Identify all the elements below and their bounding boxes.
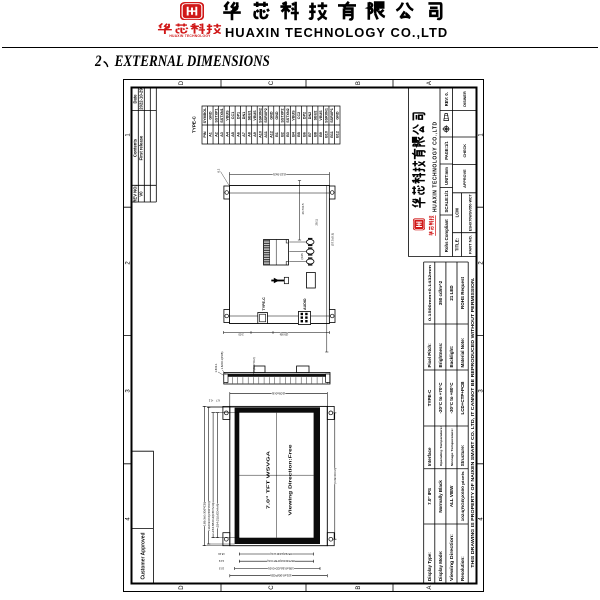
svg-text:121±0.30(PCB): 121±0.30(PCB) xyxy=(270,574,291,578)
svg-text:SSRXP2: SSRXP2 xyxy=(264,108,268,123)
svg-text:Pixel Pitch:: Pixel Pitch: xyxy=(427,343,432,368)
svg-text:(105±0.3): (105±0.3) xyxy=(272,392,285,396)
svg-text:A5: A5 xyxy=(231,132,235,137)
svg-text:B8: B8 xyxy=(314,132,318,137)
svg-text:DISINER: DISINER xyxy=(463,91,467,107)
svg-text:B1: B1 xyxy=(275,132,279,137)
svg-text:HUAXIN TECHNOLOGY CO.,LTD: HUAXIN TECHNOLOGY CO.,LTD xyxy=(433,121,439,212)
svg-text:A1: A1 xyxy=(209,132,213,137)
svg-text:APPROVE: APPROVE xyxy=(463,169,467,188)
svg-text:TYPE-C: TYPE-C xyxy=(427,389,432,406)
svg-text:CHECK: CHECK xyxy=(463,144,467,158)
svg-text:GND: GND xyxy=(336,111,340,120)
svg-text:CC2: CC2 xyxy=(297,112,301,119)
svg-text:A6: A6 xyxy=(236,132,240,137)
svg-text:SSTXP1: SSTXP1 xyxy=(214,108,218,122)
svg-text:ROHS Request: ROHS Request xyxy=(460,277,465,310)
svg-text:B9: B9 xyxy=(319,132,323,137)
svg-text:PIN: PIN xyxy=(203,131,207,137)
svg-text:DN1: DN1 xyxy=(242,112,246,119)
svg-text:ALL VIEW: ALL VIEW xyxy=(449,485,454,507)
svg-text:1024(RGB)X600 pixels: 1024(RGB)X600 pixels xyxy=(461,471,465,521)
svg-text:TITLE:: TITLE: xyxy=(455,238,460,251)
svg-text:B7: B7 xyxy=(308,132,312,137)
svg-text:165.3±0.30(PCB): 165.3±0.30(PCB) xyxy=(202,502,206,526)
svg-text:2: 2 xyxy=(478,261,484,265)
svg-text:B10: B10 xyxy=(325,131,329,138)
svg-text:6.2: 6.2 xyxy=(217,168,221,172)
svg-text:GND: GND xyxy=(209,111,213,120)
svg-text:First release: First release xyxy=(138,135,143,160)
svg-text:A2: A2 xyxy=(214,132,218,137)
svg-text:(149.3±0.2): (149.3±0.2) xyxy=(333,468,337,484)
svg-text:C: C xyxy=(269,80,275,85)
svg-text:SBU2: SBU2 xyxy=(314,111,318,121)
svg-text:85.92(LCD A.A): 85.92(LCD A.A) xyxy=(270,552,292,556)
svg-text:SBU1: SBU1 xyxy=(247,111,251,121)
svg-text:Interface: Interface xyxy=(427,447,432,466)
svg-text:LCD+CTP+PCB: LCD+CTP+PCB xyxy=(460,381,465,415)
svg-text:DN2: DN2 xyxy=(308,112,312,119)
svg-text:B11: B11 xyxy=(330,131,334,138)
svg-text:46.7±0.5: 46.7±0.5 xyxy=(301,203,305,215)
svg-text:SCALE:1/1: SCALE:1/1 xyxy=(444,190,449,213)
svg-text:Rohs Compliant: Rohs Compliant xyxy=(444,219,449,253)
svg-text:(4.05: (4.05 xyxy=(300,253,304,260)
svg-text:1.62±0.1(PCB): 1.62±0.1(PCB) xyxy=(220,352,224,370)
svg-text:REV: 0.: REV: 0. xyxy=(444,92,449,106)
svg-text:(57.5±0.3): (57.5±0.3) xyxy=(330,233,334,246)
svg-text:-30°C to +80°C: -30°C to +80°C xyxy=(449,382,454,414)
svg-text:B2: B2 xyxy=(281,132,285,137)
svg-text:VBUS: VBUS xyxy=(253,110,257,121)
svg-text:A9: A9 xyxy=(253,132,257,137)
svg-text:Operating Temperature:: Operating Temperature: xyxy=(439,426,443,466)
svg-text:(112.0±2): (112.0±2) xyxy=(273,172,286,176)
svg-text:A3: A3 xyxy=(220,132,224,137)
svg-text:SSRXP1: SSRXP1 xyxy=(330,108,334,123)
svg-text:1: 1 xyxy=(126,133,132,137)
svg-text:350 cd/m^2: 350 cd/m^2 xyxy=(438,280,443,305)
svg-text:Viewing Direction:: Viewing Direction: xyxy=(449,533,454,581)
svg-text:105±0.3(LCD O.D): 105±0.3(LCD O.D) xyxy=(268,566,294,570)
svg-text:Contents: Contents xyxy=(132,138,137,157)
svg-text:Display Mode:: Display Mode: xyxy=(438,550,443,581)
svg-text:LCM: LCM xyxy=(455,208,460,218)
svg-text:A10: A10 xyxy=(258,131,262,138)
svg-text:D: D xyxy=(179,585,185,590)
svg-text:D: D xyxy=(179,80,185,85)
svg-text:Resolution:: Resolution: xyxy=(460,556,465,581)
svg-text:B4: B4 xyxy=(292,131,296,137)
svg-text:TYPE-C: TYPE-C xyxy=(262,297,266,311)
svg-text:0.1500mm×0.1432mm: 0.1500mm×0.1432mm xyxy=(427,264,432,321)
svg-text:Backlight:: Backlight: xyxy=(449,345,454,367)
svg-text:2022-10-29: 2022-10-29 xyxy=(138,88,143,110)
svg-text:2: 2 xyxy=(126,261,132,265)
svg-text:TYPE-C: TYPE-C xyxy=(192,115,197,133)
svg-text:3: 3 xyxy=(126,389,132,393)
svg-text:CC1: CC1 xyxy=(231,112,235,119)
svg-text:Date: Date xyxy=(132,94,137,104)
svg-text:B: B xyxy=(356,81,362,85)
svg-text:V0: V0 xyxy=(138,191,143,197)
svg-text:1.6±0.1: 1.6±0.1 xyxy=(214,363,218,372)
svg-text:GND: GND xyxy=(269,111,273,120)
svg-text:‹154.88±0.2(CTP V.A): ‹154.88±0.2(CTP V.A) xyxy=(211,503,215,533)
svg-text:UNIT:mm: UNIT:mm xyxy=(444,167,449,185)
svg-text:A12: A12 xyxy=(269,131,273,138)
svg-text:A8: A8 xyxy=(247,132,251,137)
svg-text:DP2: DP2 xyxy=(303,112,307,119)
svg-text:A: A xyxy=(427,81,433,85)
svg-text:7.0” TFT WSVGA: 7.0” TFT WSVGA xyxy=(266,450,271,509)
svg-text:DP1: DP1 xyxy=(236,112,240,119)
svg-text:Customer Approved: Customer Approved xyxy=(141,533,147,580)
svg-text:(6.07±0.2): (6.07±0.2) xyxy=(252,357,256,369)
svg-text:SSRXN1: SSRXN1 xyxy=(325,108,329,123)
svg-text:-0.2: -0.2 xyxy=(208,399,213,403)
svg-text:‹154.21(LCD A.A): ‹154.21(LCD A.A) xyxy=(216,504,220,528)
svg-text:B5: B5 xyxy=(297,132,301,137)
svg-text:(29.99): (29.99) xyxy=(280,333,289,337)
svg-text:A: A xyxy=(427,586,433,590)
svg-text:C: C xyxy=(269,585,275,590)
svg-text:SYMBOL: SYMBOL xyxy=(203,107,207,124)
svg-text:1: 1 xyxy=(478,133,484,137)
svg-text:Normally Black: Normally Black xyxy=(438,480,443,513)
svg-text:10.5: 10.5 xyxy=(218,567,224,571)
svg-text:Storage Temperature:: Storage Temperature: xyxy=(450,428,454,466)
svg-text:‹164.9±0.2(LCD O.D): ‹164.9±0.2(LCD O.D) xyxy=(207,501,211,530)
svg-text:2.05: 2.05 xyxy=(238,333,244,337)
svg-text:SSTXP2: SSTXP2 xyxy=(281,108,285,122)
svg-text:29.11: 29.11 xyxy=(315,218,319,225)
svg-text:PART NO.: PART NO. xyxy=(467,235,472,254)
svg-text:21 LED: 21 LED xyxy=(449,285,454,301)
svg-text:Viewing Direction:Free: Viewing Direction:Free xyxy=(288,444,293,516)
svg-text:6.7: 6.7 xyxy=(216,399,220,403)
svg-text:VBUS: VBUS xyxy=(319,110,323,121)
svg-text:7.0'' IPS: 7.0'' IPS xyxy=(427,488,432,505)
svg-text:A4: A4 xyxy=(225,131,229,137)
svg-text:SSRXN2: SSRXN2 xyxy=(258,108,262,123)
svg-text:REV NO.: REV NO. xyxy=(132,185,137,202)
svg-text:Brightness:: Brightness: xyxy=(438,342,443,368)
svg-text:-20°C to +70°C: -20°C to +70°C xyxy=(438,382,443,414)
svg-text:4: 4 xyxy=(126,517,132,521)
svg-text:VBUS: VBUS xyxy=(225,110,229,121)
svg-text:Structure:: Structure: xyxy=(460,444,465,466)
svg-text:B12: B12 xyxy=(336,131,340,138)
svg-text:A11: A11 xyxy=(264,131,268,138)
svg-text:Material Note:: Material Note: xyxy=(460,337,465,367)
svg-text:4: 4 xyxy=(478,517,484,521)
svg-text:86.73±0.2(CTP V.A): 86.73±0.2(CTP V.A) xyxy=(267,559,295,563)
svg-text:PAGE:1/1: PAGE:1/1 xyxy=(444,141,449,160)
svg-text:SSTXN1: SSTXN1 xyxy=(220,108,224,122)
svg-text:3: 3 xyxy=(478,389,484,393)
svg-text:ESHX70WSV050-WCT: ESHX70WSV050-WCT xyxy=(467,194,472,232)
svg-text:THIS DRAWING IS PROPERTY OF NA: THIS DRAWING IS PROPERTY OF NAIXEN SMART… xyxy=(470,278,475,568)
svg-text:B6: B6 xyxy=(303,132,307,137)
svg-text:B: B xyxy=(356,586,362,590)
svg-text:B3: B3 xyxy=(286,132,290,137)
svg-text:GND: GND xyxy=(275,111,279,120)
svg-text:15.19: 15.19 xyxy=(218,552,225,556)
svg-text:A7: A7 xyxy=(242,132,246,137)
svg-text:VBUS: VBUS xyxy=(292,110,296,121)
svg-text:SSTXN2: SSTXN2 xyxy=(286,108,290,122)
svg-text:AUDIO: AUDIO xyxy=(303,298,307,310)
svg-text:Display Type:: Display Type: xyxy=(427,552,432,581)
svg-text:14.9: 14.9 xyxy=(218,559,224,563)
